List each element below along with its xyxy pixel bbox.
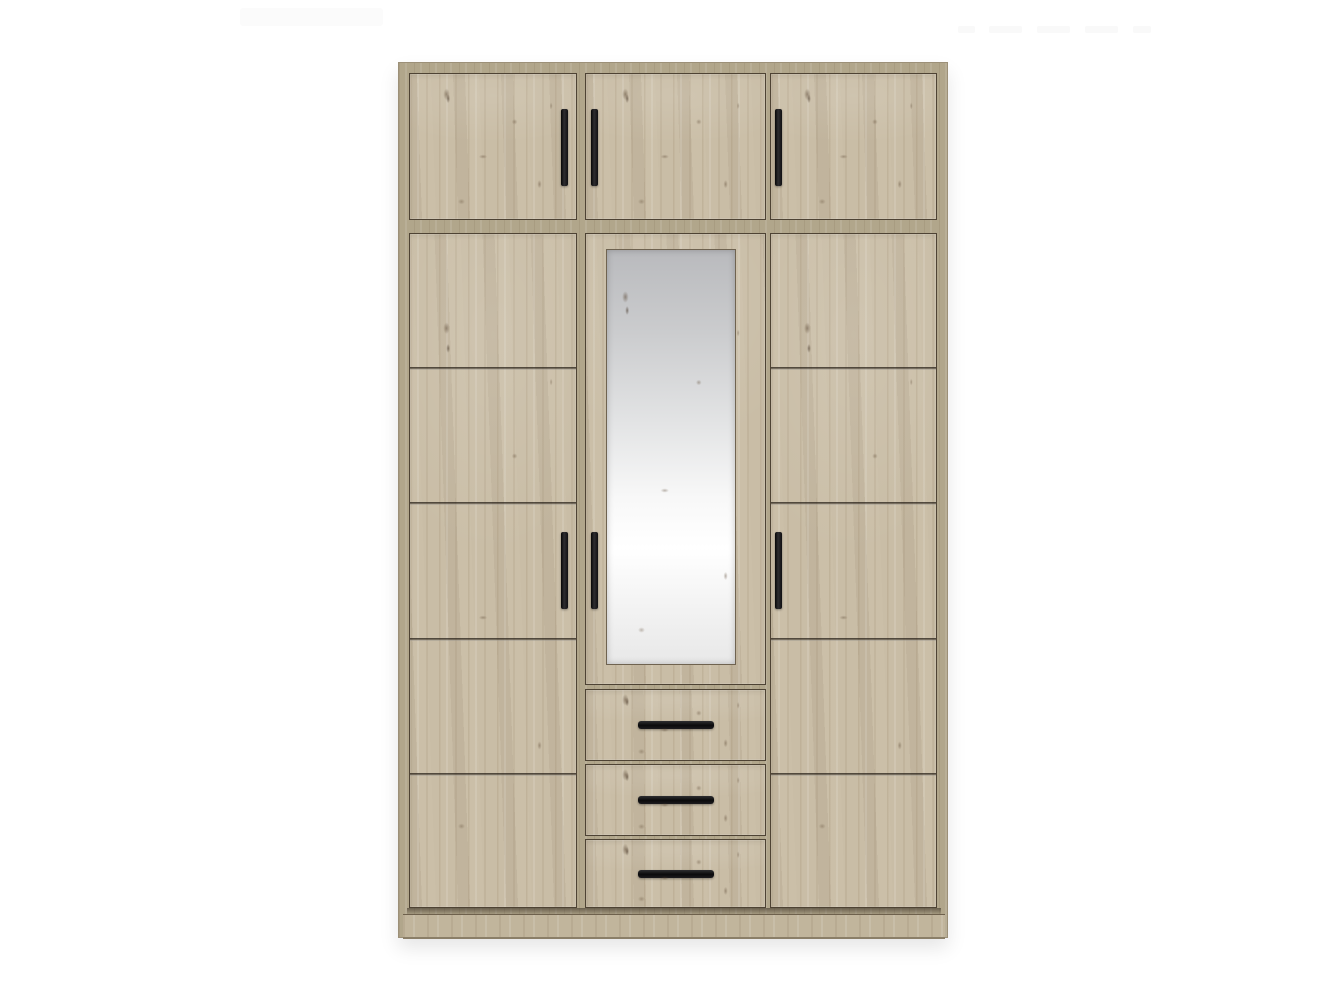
- door-handle: [561, 109, 568, 186]
- top-cabinet-door-middle: [585, 73, 766, 220]
- door-handle: [561, 532, 568, 609]
- top-cabinet-door-left: [409, 73, 577, 220]
- drawer-2: [585, 764, 766, 836]
- drawer-3: [585, 839, 766, 908]
- wardrobe-door-right: [770, 233, 937, 908]
- door-handle: [591, 532, 598, 609]
- wardrobe: [398, 62, 948, 938]
- ghost-menu-artifact: [958, 26, 975, 33]
- ghost-menu-artifact: [1085, 26, 1118, 33]
- door-groove: [410, 773, 576, 776]
- drawer-handle: [638, 870, 714, 878]
- top-cabinet-door-right: [770, 73, 937, 220]
- drawer-handle: [638, 721, 714, 729]
- drawer-1: [585, 689, 766, 761]
- product-photo: [0, 0, 1340, 1005]
- ghost-menu-artifact: [1037, 26, 1070, 33]
- mirror: [606, 249, 736, 665]
- door-groove: [410, 502, 576, 505]
- door-handle: [775, 109, 782, 186]
- plinth: [403, 914, 945, 939]
- wardrobe-door-left: [409, 233, 577, 908]
- drawer-handle: [638, 796, 714, 804]
- wardrobe-door-mirror: [585, 233, 766, 685]
- door-handle: [775, 532, 782, 609]
- door-groove: [410, 638, 576, 641]
- door-handle: [591, 109, 598, 186]
- door-groove: [771, 502, 936, 505]
- ghost-menu-artifact: [1133, 26, 1151, 33]
- ghost-toolbar-artifact: [240, 8, 383, 26]
- ghost-menu-artifact: [989, 26, 1022, 33]
- door-groove: [771, 367, 936, 370]
- door-groove: [410, 367, 576, 370]
- door-groove: [771, 773, 936, 776]
- door-groove: [771, 638, 936, 641]
